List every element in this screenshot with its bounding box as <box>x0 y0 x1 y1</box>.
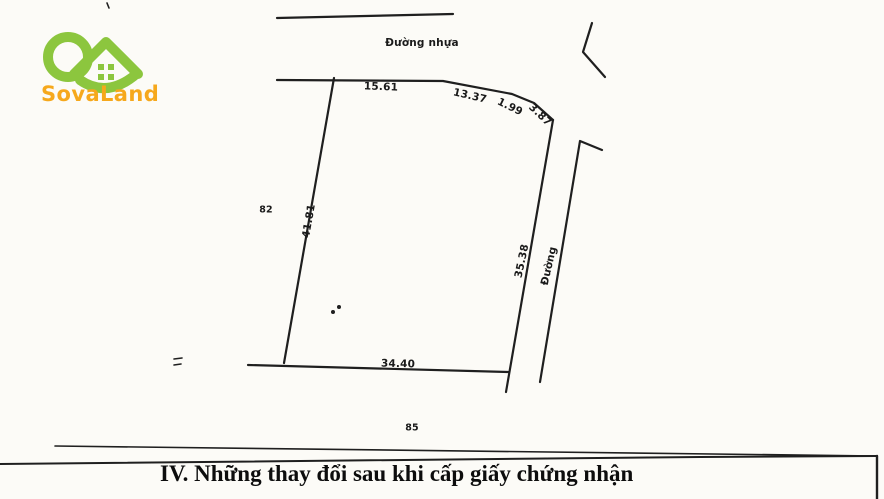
sheet-top-line <box>277 14 453 18</box>
adjacent-parcel-number-bottom: 85 <box>405 423 419 434</box>
stray-tick-top-left <box>107 3 109 8</box>
road-upper-curve <box>583 23 605 77</box>
scanned-land-certificate-page: SovaLand <box>0 0 884 499</box>
parcel-bottom-boundary <box>248 365 508 372</box>
parcel-sketch <box>0 0 884 499</box>
map-bottom-edge-line <box>55 446 877 456</box>
dimension-top-1: 15.61 <box>364 80 399 93</box>
adjacent-parcel-number-left: 82 <box>259 205 273 216</box>
top-road-label: Đường nhựa <box>385 37 459 49</box>
dimension-bottom: 34.40 <box>381 358 416 371</box>
stray-mark-left <box>174 358 182 365</box>
parcel-center-mark-2 <box>337 305 341 309</box>
section-iv-title: IV. Những thay đổi sau khi cấp giấy chứn… <box>160 461 633 487</box>
parcel-center-mark <box>331 310 335 314</box>
